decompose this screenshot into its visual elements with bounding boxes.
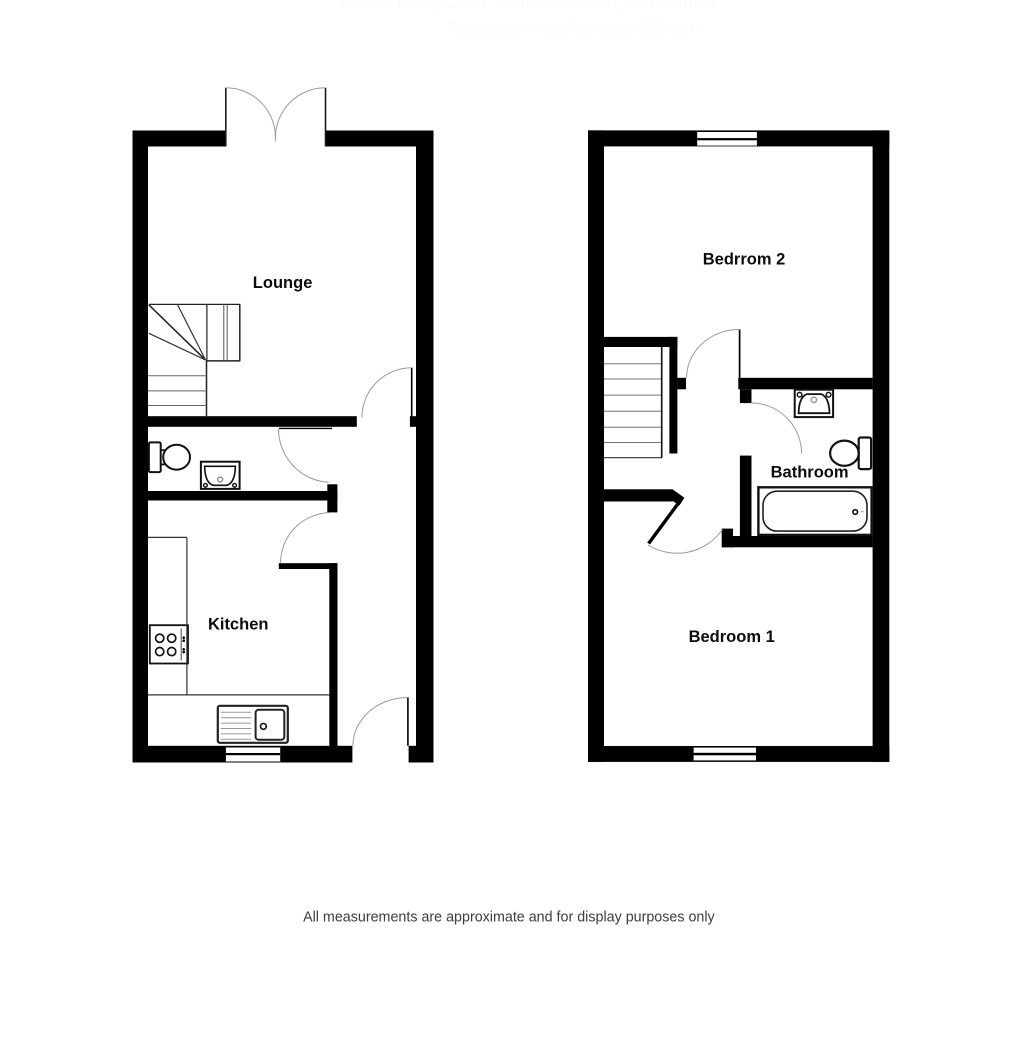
svg-text:All measurements are approxima: All measurements are approximate and for… <box>303 910 715 926</box>
svg-text:Flat 22 Priory Court, Lancaste: Flat 22 Priory Court, Lancaster Road, Mo… <box>340 0 716 12</box>
svg-text:Kitchen: Kitchen <box>208 616 269 634</box>
svg-text:Lounge: Lounge <box>253 274 313 292</box>
svg-text:Total approximate floor area 5: Total approximate floor area 58.3 sq m <box>447 20 703 37</box>
svg-text:Bedroom 1: Bedroom 1 <box>689 628 775 646</box>
svg-text:Bedrrom 2: Bedrrom 2 <box>703 250 786 268</box>
svg-text:Bathroom: Bathroom <box>771 463 849 481</box>
